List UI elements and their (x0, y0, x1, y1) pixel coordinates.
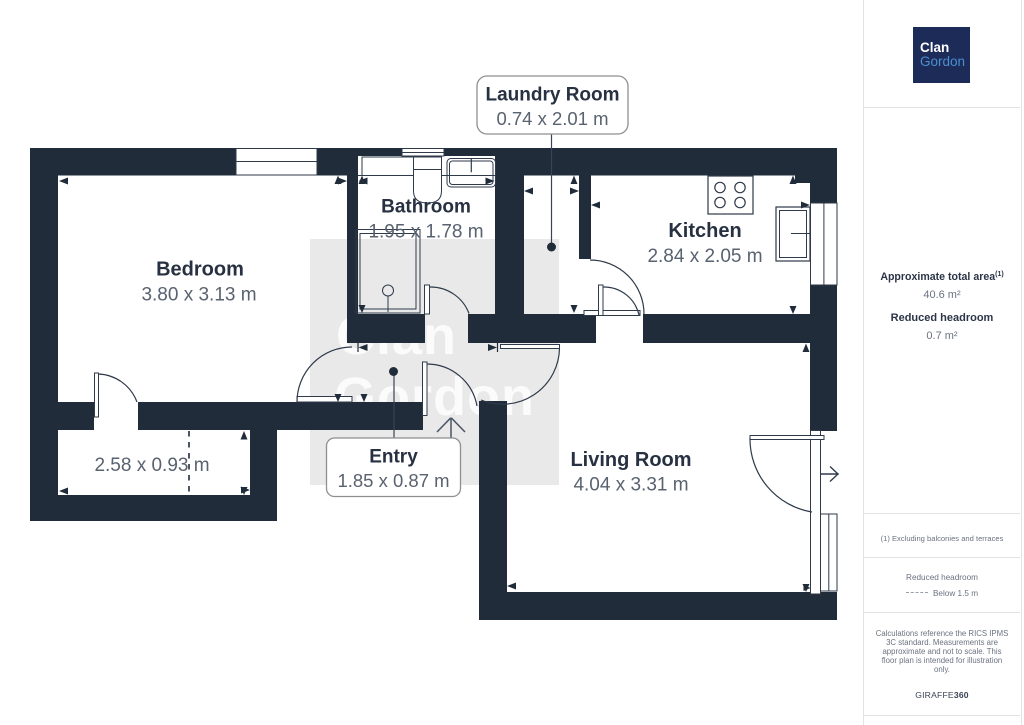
svg-text:Living Room: Living Room (570, 449, 691, 471)
svg-text:1.95 x 1.78 m: 1.95 x 1.78 m (368, 222, 483, 243)
svg-text:4.04 x 3.31 m: 4.04 x 3.31 m (573, 475, 688, 496)
svg-text:1.85 x 0.87 m: 1.85 x 0.87 m (337, 470, 449, 491)
svg-text:2.58 x 0.93 m: 2.58 x 0.93 m (94, 455, 209, 476)
svg-text:3.80 x 3.13 m: 3.80 x 3.13 m (141, 285, 256, 306)
svg-text:Bathroom: Bathroom (381, 197, 471, 218)
svg-text:Laundry Room: Laundry Room (485, 85, 619, 106)
svg-text:Bedroom: Bedroom (156, 259, 244, 281)
svg-text:Kitchen: Kitchen (668, 220, 741, 242)
svg-text:Entry: Entry (369, 447, 418, 468)
svg-text:0.74 x 2.01 m: 0.74 x 2.01 m (496, 108, 608, 129)
svg-text:2.84 x 2.05 m: 2.84 x 2.05 m (647, 246, 762, 267)
